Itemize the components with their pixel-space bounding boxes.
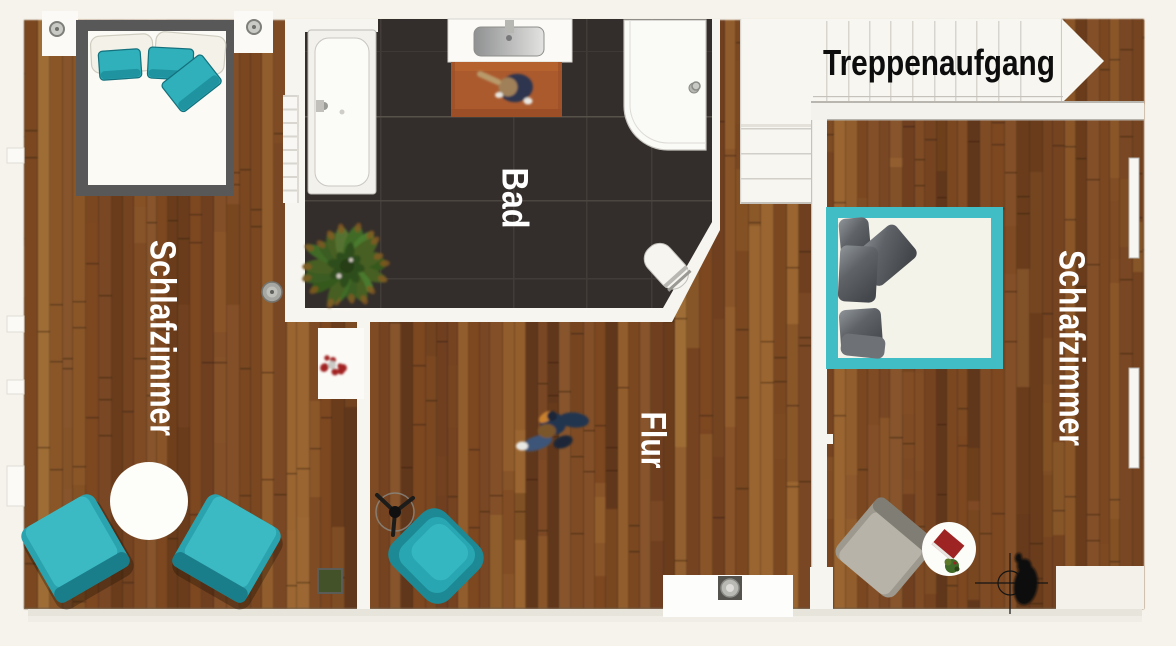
svg-text:Treppenaufgang: Treppenaufgang <box>823 42 1055 83</box>
svg-text:Schlafzimmer: Schlafzimmer <box>1052 250 1093 446</box>
svg-text:Bad: Bad <box>495 168 536 229</box>
svg-text:Schlafzimmer: Schlafzimmer <box>143 240 184 436</box>
svg-text:Flur: Flur <box>634 412 673 469</box>
